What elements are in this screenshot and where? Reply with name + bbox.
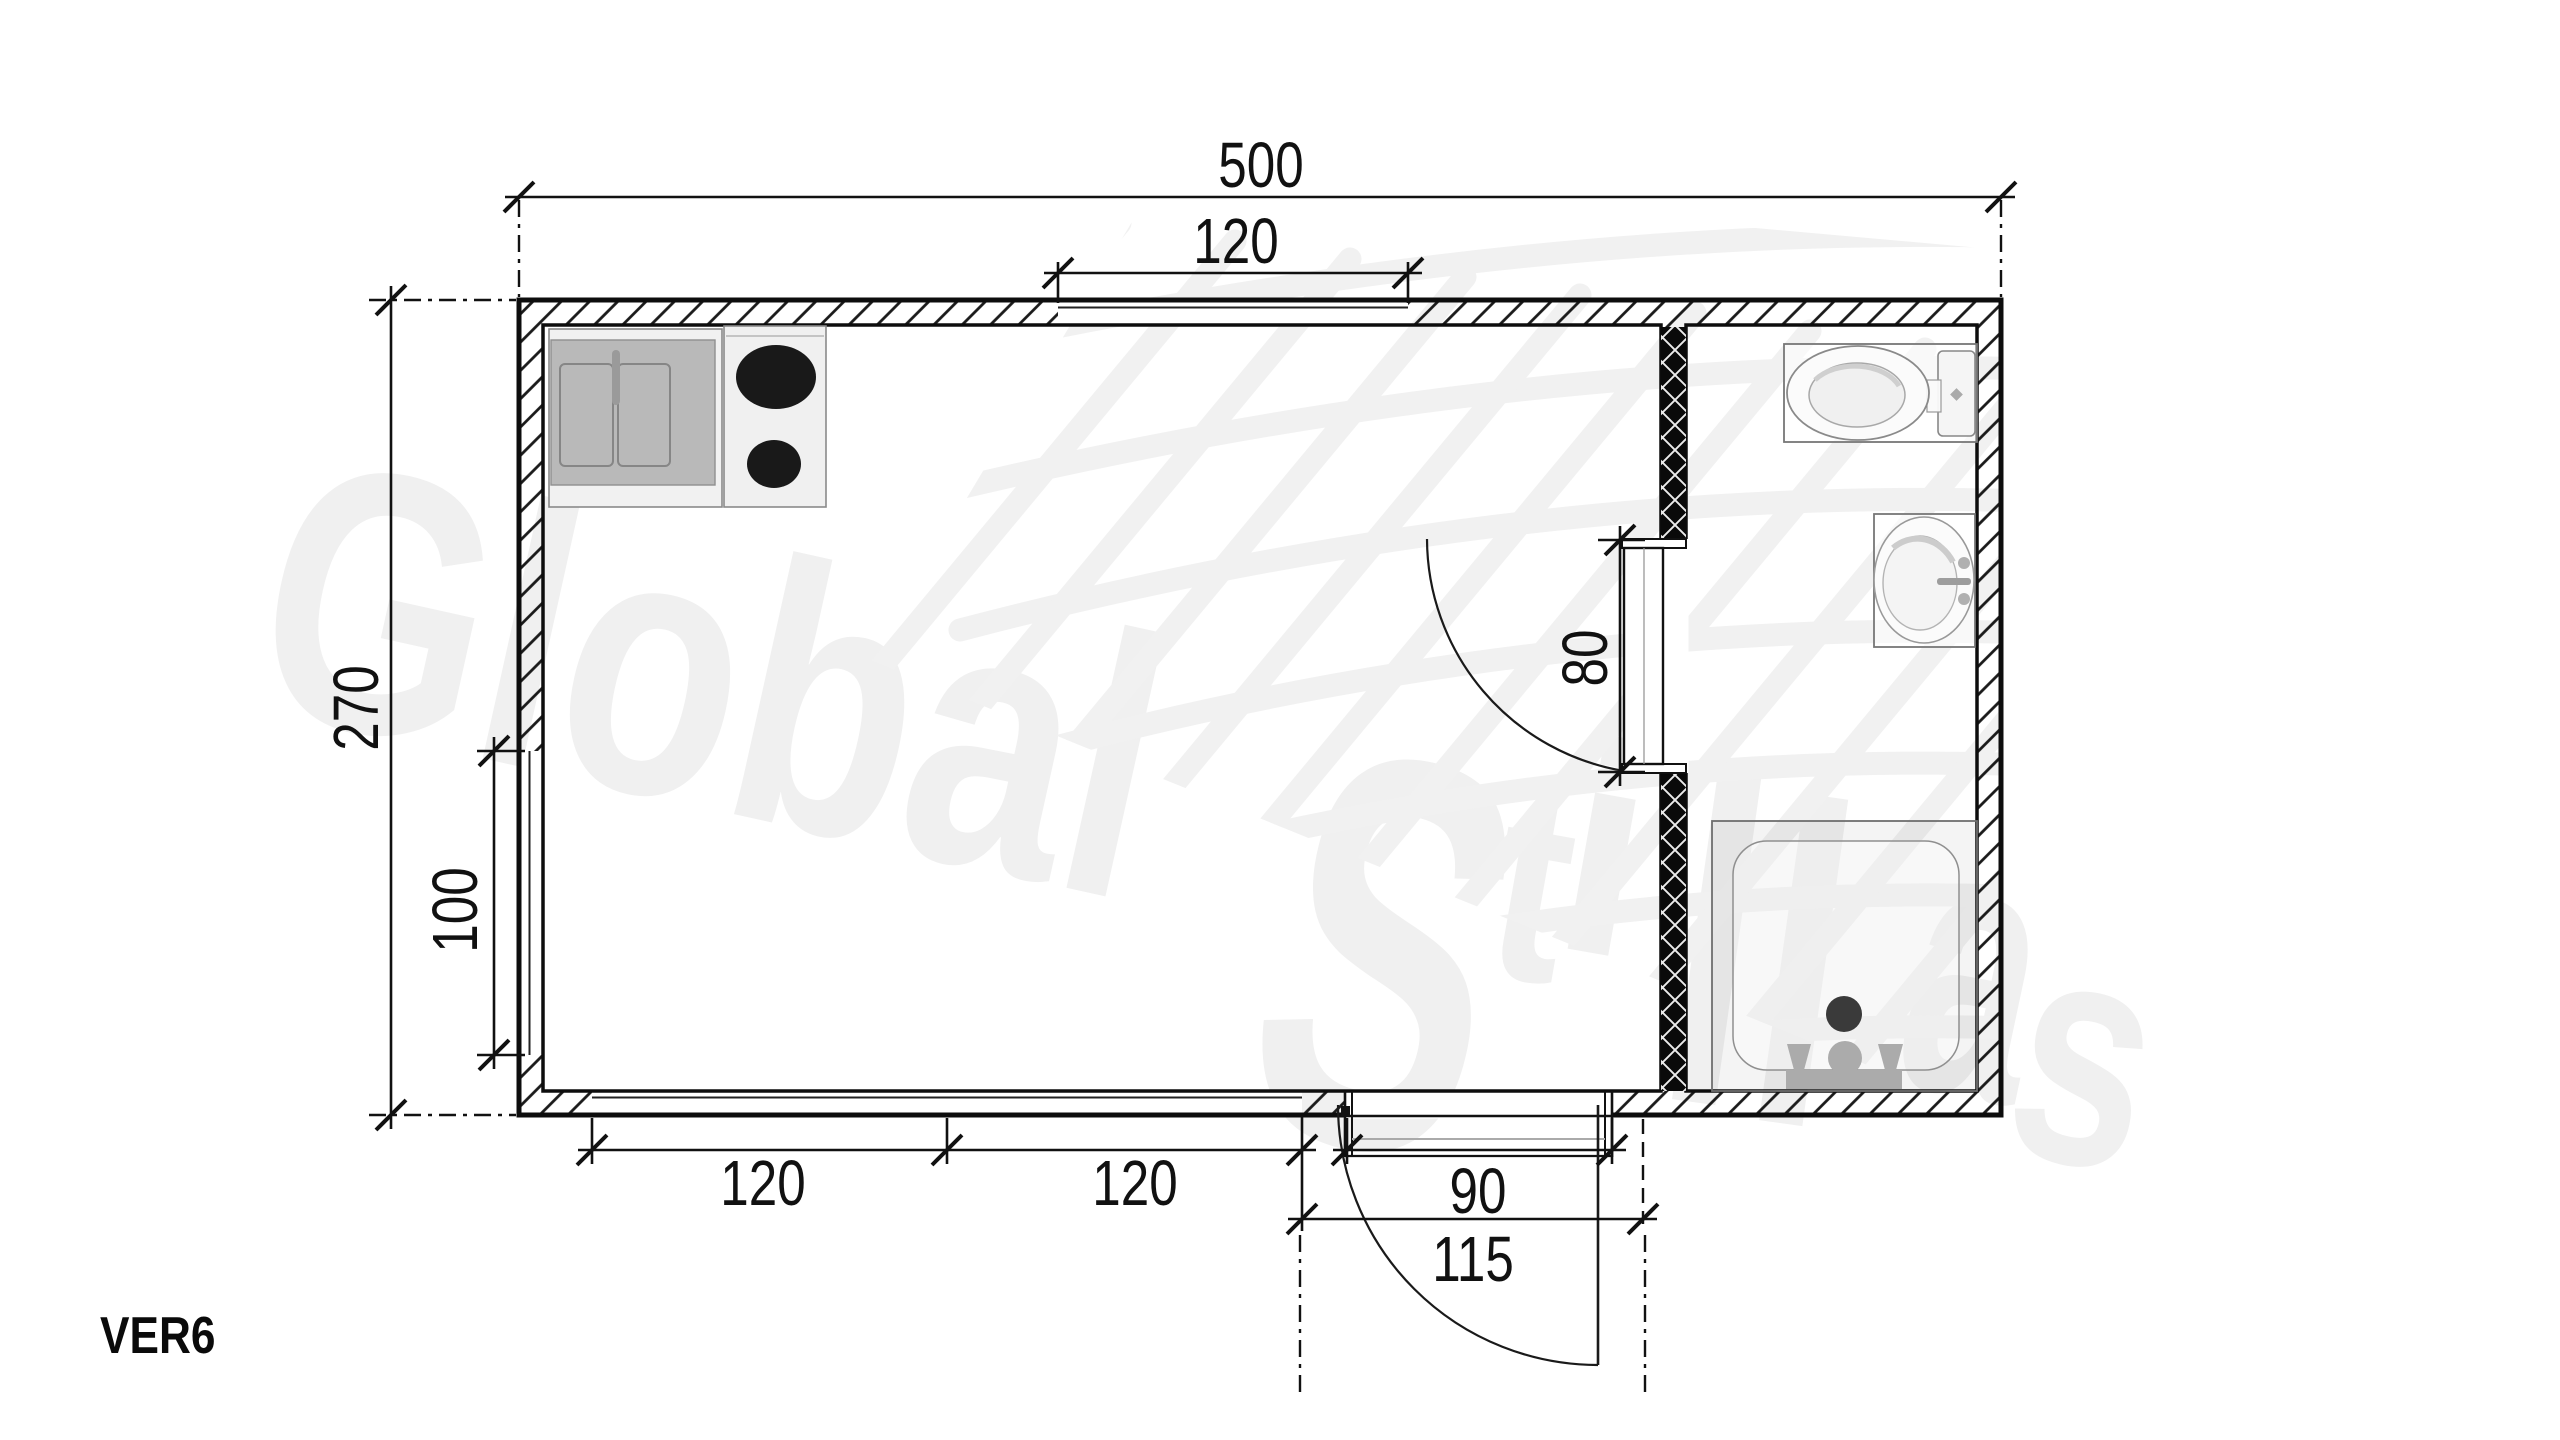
svg-text:VER6: VER6: [100, 1307, 215, 1365]
svg-text:90: 90: [1450, 1157, 1507, 1228]
svg-text:100: 100: [421, 867, 492, 952]
svg-text:270: 270: [322, 665, 393, 750]
svg-text:500: 500: [1218, 131, 1303, 202]
svg-text:115: 115: [1432, 1225, 1514, 1296]
svg-text:120: 120: [1193, 207, 1278, 278]
svg-text:120: 120: [1092, 1149, 1177, 1220]
svg-text:120: 120: [720, 1149, 805, 1220]
svg-text:80: 80: [1551, 630, 1622, 687]
